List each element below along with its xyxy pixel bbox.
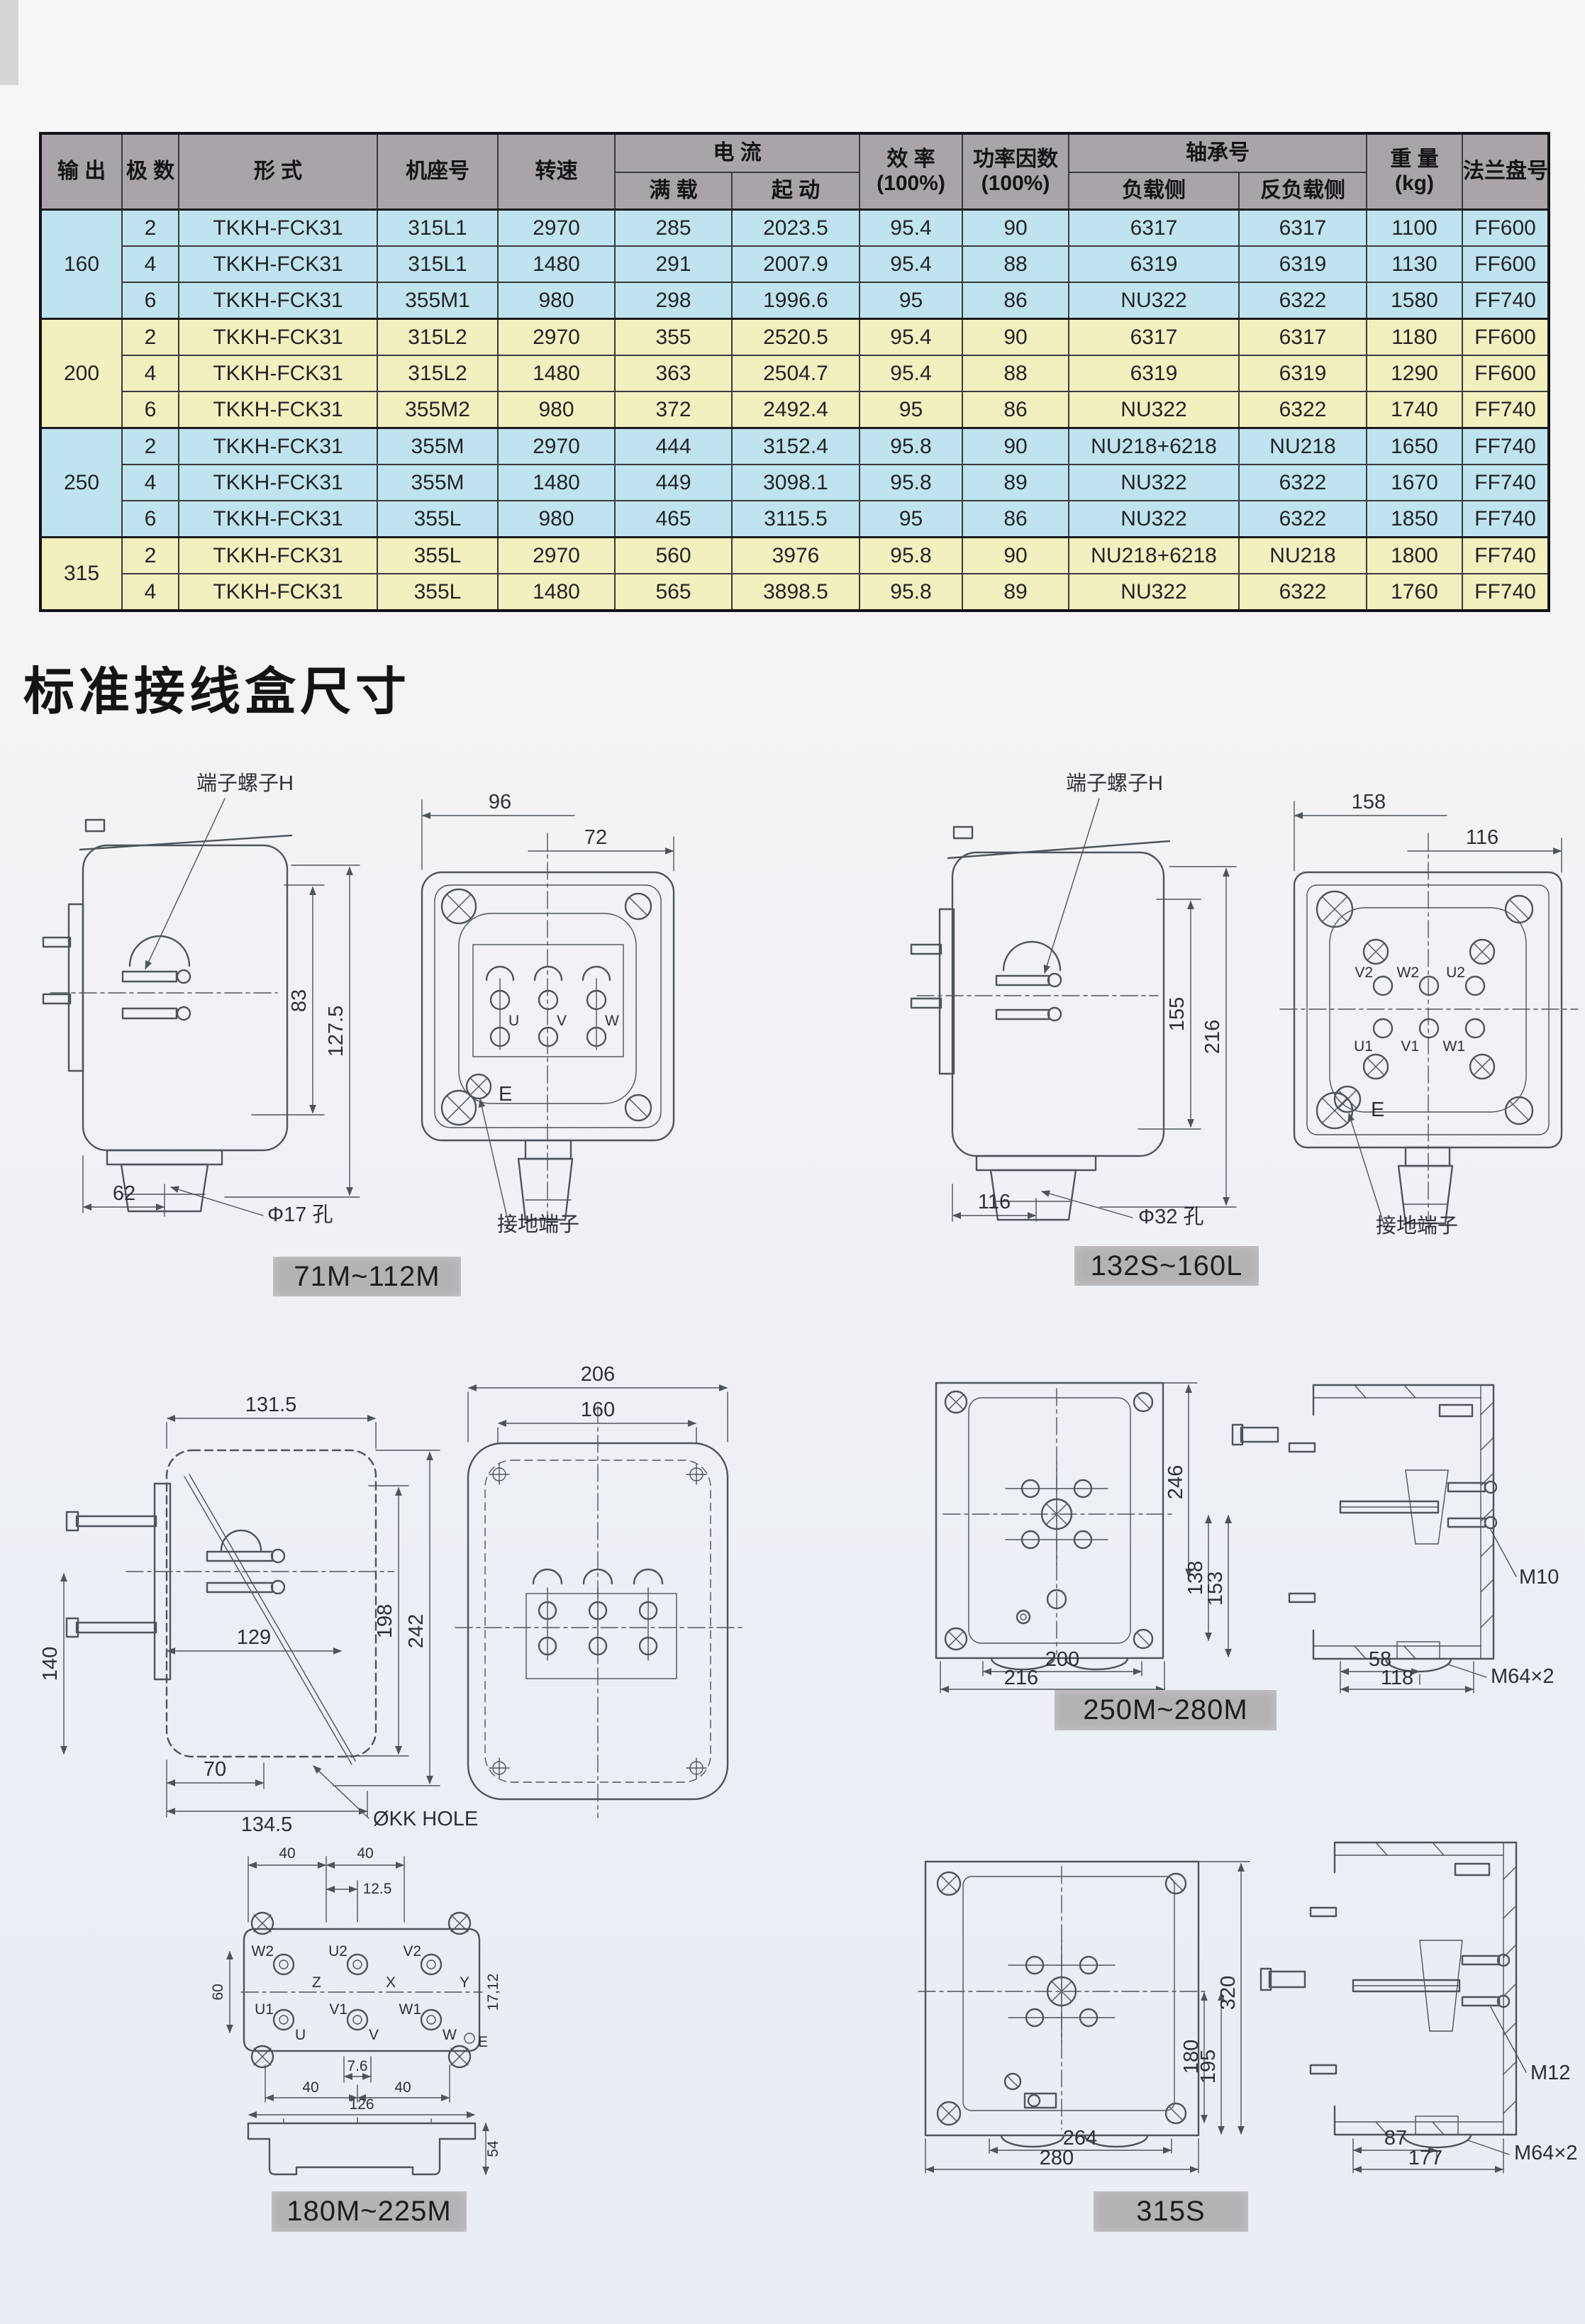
dim-118: 118 xyxy=(1381,1667,1413,1689)
spec-cell: 1580 xyxy=(1367,282,1462,319)
hole-dim-label: Φ17 孔 xyxy=(267,1203,333,1226)
spec-cell: 6 xyxy=(122,391,179,428)
spec-table-body: 1602TKKH-FCK31315L129702852023.595.49063… xyxy=(40,210,1549,611)
spec-cell: 2970 xyxy=(498,210,615,247)
col-header-type: 形 式 xyxy=(179,133,377,210)
table-row: 6TKKH-FCK31355M19802981996.69586NU322632… xyxy=(40,282,1549,319)
spec-cell: 95.8 xyxy=(860,538,962,574)
dim-40-bot-left: 40 xyxy=(302,2079,318,2096)
dimension-annotations: 端子螺子H 155 216 116 Φ32 孔 xyxy=(952,772,1236,1228)
dim-40-bot-right: 40 xyxy=(394,2079,411,2096)
dimension-annotations: 158 116 xyxy=(1294,791,1562,872)
diagram-132s-front-view: 158 116 V2 W2 U2 U1 V1 W1 E xyxy=(1269,766,1585,1234)
table-row: 4TKKH-FCK31355L14805653898.595.889NU3226… xyxy=(40,574,1549,611)
spec-cell: 315L1 xyxy=(377,210,498,247)
spec-cell: NU218+6218 xyxy=(1069,428,1239,465)
spec-cell: 6322 xyxy=(1239,501,1367,538)
earth-terminal-label: E xyxy=(478,2034,488,2050)
phase-v-label: V xyxy=(369,2027,379,2043)
thread-m12-label: M12 xyxy=(1530,2062,1570,2084)
table-row: 2002TKKH-FCK31315L229703552520.595.49063… xyxy=(40,319,1549,356)
spec-cell: 95.4 xyxy=(860,246,962,282)
dim-155: 155 xyxy=(1166,997,1189,1031)
spec-cell: 355M1 xyxy=(377,282,498,319)
spec-cell: 1290 xyxy=(1367,355,1462,391)
spec-cell: 6319 xyxy=(1069,246,1239,282)
col-header-load-side: 负载侧 xyxy=(1069,172,1239,210)
spec-cell: 315L1 xyxy=(377,246,498,282)
terminal-u-label: U xyxy=(508,1013,519,1029)
junction-box-body xyxy=(43,820,291,1211)
spec-cell: 298 xyxy=(615,282,732,319)
col-header-current: 电 流 xyxy=(615,133,860,172)
spec-cell: 355L xyxy=(377,574,498,611)
front-view xyxy=(936,1383,1172,1669)
dim-195: 195 xyxy=(1197,2050,1220,2084)
dim-280: 280 xyxy=(1040,2147,1074,2169)
dim-40-top-left: 40 xyxy=(279,1845,295,1862)
link-x-label: X xyxy=(386,1974,396,1991)
spec-cell: 6319 xyxy=(1069,355,1239,391)
spec-cell: 88 xyxy=(962,355,1069,391)
dimension-annotations-bottom: 7.6 40 40 xyxy=(265,2057,450,2102)
frame-range-label-250m-280m: 250M~280M xyxy=(1055,1690,1277,1730)
dim-131-5: 131.5 xyxy=(245,1394,297,1416)
spec-cell: 1800 xyxy=(1367,538,1462,574)
terminal-block-side-view: 126 54 xyxy=(248,2096,501,2174)
spec-cell: FF740 xyxy=(1462,391,1549,428)
spec-cell: NU322 xyxy=(1069,391,1239,428)
diagram-midframe-front-view: 206 160 xyxy=(447,1344,752,1855)
spec-cell: 95 xyxy=(860,282,962,319)
junction-box-cover xyxy=(422,833,674,1225)
spec-cell: 90 xyxy=(962,428,1069,465)
spec-cell: 2 xyxy=(122,538,179,574)
spec-cell: 355 xyxy=(615,319,732,356)
spec-cell: 1480 xyxy=(498,465,615,501)
spec-cell: 1650 xyxy=(1367,428,1462,465)
phase-w-label: W xyxy=(443,2027,457,2043)
spec-cell: 980 xyxy=(498,282,615,319)
header-line: (kg) xyxy=(1367,172,1462,196)
spec-cell: 6317 xyxy=(1239,210,1367,247)
spec-cell: 2023.5 xyxy=(732,210,860,247)
spec-cell: 355M2 xyxy=(377,391,498,428)
corner-screw-icon xyxy=(945,1391,1152,1650)
spec-cell: 6322 xyxy=(1239,465,1367,501)
spec-cell: 88 xyxy=(962,246,1069,282)
cable-gland xyxy=(1398,1147,1452,1223)
spec-cell: NU322 xyxy=(1069,501,1239,538)
spec-cell: TKKH-FCK31 xyxy=(179,501,377,538)
spec-cell: 6319 xyxy=(1239,355,1367,391)
spec-cell: 2504.7 xyxy=(732,355,860,391)
spec-cell: FF740 xyxy=(1462,501,1549,538)
spec-cell: 980 xyxy=(498,501,615,538)
ground-terminal-label: 接地端子 xyxy=(1376,1214,1458,1238)
dimension-annotations: 200 216 246 138 153 xyxy=(940,1383,1228,1693)
header-line: 功率因数 xyxy=(963,148,1068,172)
header-line: (100%) xyxy=(860,172,962,196)
dimension-annotations-section: M10 58 118 M64×2 xyxy=(1340,1530,1559,1693)
spec-cell: 1480 xyxy=(498,246,615,282)
spec-cell: 90 xyxy=(962,210,1069,247)
cable-gland xyxy=(518,1140,572,1220)
spec-cell: 565 xyxy=(615,574,732,611)
dim-158: 158 xyxy=(1352,791,1386,813)
spec-cell: TKKH-FCK31 xyxy=(179,282,377,319)
dimension-annotations: 131.5 129 198 242 140 70 134.5 ØKK HOLE xyxy=(39,1394,478,1836)
spec-cell: 6322 xyxy=(1239,282,1367,319)
motor-spec-table: 输 出 极 数 形 式 机座号 转速 电 流 效 率 (100%) 功率因数 (… xyxy=(39,132,1550,612)
dim-153: 153 xyxy=(1204,1572,1227,1606)
spec-cell: 2 xyxy=(122,210,179,247)
col-header-bearing: 轴承号 xyxy=(1069,133,1367,172)
spec-cell: TKKH-FCK31 xyxy=(179,355,377,391)
col-header-weight: 重 量 (kg) xyxy=(1367,133,1462,210)
spec-cell: 1480 xyxy=(498,355,615,391)
col-header-anti-load-side: 反负载侧 xyxy=(1239,172,1367,210)
spec-cell: 2492.4 xyxy=(732,391,860,428)
spec-cell: FF740 xyxy=(1462,428,1549,465)
table-row: 2502TKKH-FCK31355M29704443152.495.890NU2… xyxy=(40,428,1549,465)
header-line: 效 率 xyxy=(860,148,962,172)
terminal-w2-label: W2 xyxy=(1397,964,1420,981)
spec-cell: NU218 xyxy=(1239,538,1367,574)
section-title: 标准接线盒尺寸 xyxy=(23,650,411,724)
spec-cell: 2970 xyxy=(498,428,615,465)
spec-cell: 4 xyxy=(122,355,179,391)
col-header-flange: 法兰盘号 xyxy=(1462,133,1549,210)
spec-cell: 6 xyxy=(122,282,179,319)
earth-terminal-label: E xyxy=(499,1083,512,1106)
dim-96: 96 xyxy=(489,791,511,813)
col-header-efficiency: 效 率 (100%) xyxy=(860,133,962,210)
spec-cell: 6317 xyxy=(1239,319,1367,356)
dim-140: 140 xyxy=(39,1647,62,1681)
dim-60: 60 xyxy=(210,1984,226,2000)
spec-cell: TKKH-FCK31 xyxy=(179,574,377,611)
table-row: 1602TKKH-FCK31315L129702852023.595.49063… xyxy=(40,210,1549,247)
dim-7-6: 7.6 xyxy=(347,2058,367,2074)
spec-cell: FF740 xyxy=(1462,574,1549,611)
frame-range-label-315s: 315S xyxy=(1094,2191,1248,2232)
terminal-block-top-view: W2 U2 V2 Z X Y U1 V1 W1 U V W E xyxy=(241,1913,488,2067)
spec-cell: 2 xyxy=(122,319,179,356)
dim-116: 116 xyxy=(1466,826,1498,849)
dim-54: 54 xyxy=(485,2140,501,2157)
dim-40-top-right: 40 xyxy=(357,1845,373,1862)
spec-cell: FF740 xyxy=(1462,465,1549,501)
dim-134-5: 134.5 xyxy=(241,1813,293,1836)
terminal-block: V2 W2 U2 U1 V1 W1 E xyxy=(1335,940,1494,1121)
dim-70: 70 xyxy=(204,1758,226,1781)
table-row: 6TKKH-FCK31355M29803722492.49586NU322632… xyxy=(40,391,1549,428)
terminal-u2-label: U2 xyxy=(1446,964,1465,981)
spec-cell: 2007.9 xyxy=(732,246,860,282)
spec-cell: 95.8 xyxy=(860,574,962,611)
spec-cell: 86 xyxy=(962,501,1069,538)
spec-cell: 6322 xyxy=(1239,391,1367,428)
spec-cell: 4 xyxy=(122,574,179,611)
spec-cell: 4 xyxy=(122,465,179,501)
table-row: 4TKKH-FCK31315L114802912007.995.48863196… xyxy=(40,246,1549,282)
spec-cell: 95 xyxy=(860,391,962,428)
thread-m64-label: M64×2 xyxy=(1514,2142,1577,2164)
output-group-cell: 250 xyxy=(40,428,122,538)
spec-cell: 2 xyxy=(122,428,179,465)
spec-cell: 1760 xyxy=(1367,574,1462,611)
dim-198: 198 xyxy=(374,1604,396,1638)
spec-cell: 291 xyxy=(615,246,732,282)
spec-cell: 6322 xyxy=(1239,574,1367,611)
spec-cell: 560 xyxy=(615,538,732,574)
front-view xyxy=(918,1862,1207,2147)
spec-cell: 465 xyxy=(615,501,732,538)
terminal-v1-label: V1 xyxy=(329,2001,347,2018)
spec-cell: 3115.5 xyxy=(732,501,860,538)
spec-cell: TKKH-FCK31 xyxy=(179,246,377,282)
terminal-screw-label: 端子螺子H xyxy=(1066,772,1163,795)
thread-m10-label: M10 xyxy=(1519,1566,1559,1589)
spec-cell: 95.8 xyxy=(860,428,962,465)
spec-cell: NU322 xyxy=(1069,282,1239,319)
catalog-page: { "title": { "section": "标准接线盒尺寸" }, "ta… xyxy=(0,0,1585,2324)
dim-12-5: 12.5 xyxy=(363,1881,392,1897)
dim-17-12: 17,12 xyxy=(485,1974,501,2011)
spec-cell: 449 xyxy=(615,465,732,501)
output-group-cell: 160 xyxy=(40,210,122,319)
dimension-annotations-top: 40 40 12.5 xyxy=(248,1845,404,1922)
spec-cell: 6 xyxy=(122,501,179,538)
terminal-u1-label: U1 xyxy=(1354,1038,1373,1055)
terminal-w2-label: W2 xyxy=(252,1943,274,1959)
junction-box-cover xyxy=(1280,833,1578,1230)
dim-127-5: 127.5 xyxy=(325,1006,347,1057)
terminal-block: U V W E xyxy=(467,967,619,1106)
spec-cell: 1670 xyxy=(1367,465,1462,501)
dimension-annotations: 96 72 xyxy=(422,791,674,871)
spec-cell: TKKH-FCK31 xyxy=(179,538,377,574)
dim-206: 206 xyxy=(581,1363,615,1386)
diagram-180m-225m: 40 40 12.5 W2 U2 V2 Z X Y U1 V1 W1 U V W xyxy=(206,1837,511,2177)
thread-m64-label: M64×2 xyxy=(1491,1665,1554,1688)
spec-cell: 285 xyxy=(615,210,732,247)
terminal-v2-label: V2 xyxy=(403,1943,421,1959)
ground-terminal-label: 接地端子 xyxy=(497,1213,579,1236)
hole-dim-label: Φ32 孔 xyxy=(1138,1206,1203,1228)
col-header-power-factor: 功率因数 (100%) xyxy=(962,133,1069,210)
col-header-poles: 极 数 xyxy=(122,133,179,210)
spec-cell: 980 xyxy=(498,391,615,428)
dim-246: 246 xyxy=(1164,1465,1187,1499)
link-z-label: Z xyxy=(312,1974,321,1991)
section-view xyxy=(1289,1385,1496,1672)
dim-87: 87 xyxy=(1384,2127,1407,2150)
junction-box-body xyxy=(67,1450,394,1764)
spec-cell: 95.4 xyxy=(860,319,962,356)
dim-242: 242 xyxy=(405,1614,428,1648)
spec-cell: FF600 xyxy=(1462,355,1549,391)
spec-cell: 1996.6 xyxy=(732,282,860,319)
spec-cell: 355M xyxy=(377,465,498,501)
header-line: 重 量 xyxy=(1367,148,1462,172)
table-row: 4TKKH-FCK31355M14804493098.195.889NU3226… xyxy=(40,465,1549,501)
col-header-frame: 机座号 xyxy=(377,133,498,210)
diagram-71m-side-view: 端子螺子H 83 127.5 62 Φ17 孔 xyxy=(39,759,372,1227)
corner-screw-icon xyxy=(1317,891,1533,1128)
terminal-w1-label: W1 xyxy=(399,2001,422,2018)
dim-83: 83 xyxy=(288,989,311,1012)
section-view xyxy=(1311,1842,1516,2147)
output-group-cell: 200 xyxy=(40,319,122,428)
spec-cell: 6317 xyxy=(1069,319,1239,356)
spec-cell: 95.8 xyxy=(860,465,962,501)
spec-cell: FF740 xyxy=(1462,282,1549,319)
spec-cell: 3898.5 xyxy=(732,574,860,611)
spec-cell: FF600 xyxy=(1462,246,1549,282)
spec-cell: 1130 xyxy=(1367,246,1462,282)
loose-bolt xyxy=(1261,1969,1305,1990)
col-header-full-load: 满 载 xyxy=(615,172,732,210)
diagram-midframe-side-view: 131.5 129 198 242 140 70 134.5 ØKK HOLE xyxy=(35,1369,461,1837)
spec-table-header: 输 出 极 数 形 式 机座号 转速 电 流 效 率 (100%) 功率因数 (… xyxy=(40,133,1549,210)
spec-cell: 86 xyxy=(962,282,1069,319)
spec-cell: 89 xyxy=(962,465,1069,501)
dim-126: 126 xyxy=(349,2096,374,2113)
spec-cell: 95 xyxy=(860,501,962,538)
dim-177: 177 xyxy=(1408,2147,1442,2169)
mount-hole-icon xyxy=(252,1913,470,2067)
terminal-u2-label: U2 xyxy=(328,1943,347,1959)
dimension-annotations-section: M12 87 177 M64×2 xyxy=(1353,2007,1577,2173)
phase-u-label: U xyxy=(295,2027,306,2043)
spec-cell: 1850 xyxy=(1367,501,1462,538)
spec-cell: NU218 xyxy=(1239,428,1367,465)
dim-320: 320 xyxy=(1217,1976,1240,2010)
spec-cell: 90 xyxy=(962,538,1069,574)
spec-cell: 3098.1 xyxy=(732,465,860,501)
terminal-u1-label: U1 xyxy=(255,2001,274,2018)
spec-cell: TKKH-FCK31 xyxy=(179,319,377,356)
dim-116: 116 xyxy=(978,1191,1011,1213)
diagram-71m-front-view: 96 72 U V W E 接地端子 xyxy=(394,766,699,1234)
dim-216: 216 xyxy=(1201,1020,1224,1054)
spec-cell: 1740 xyxy=(1367,391,1462,428)
spec-cell: 2970 xyxy=(498,319,615,356)
terminal-w1-label: W1 xyxy=(1443,1038,1466,1055)
terminal-v2-label: V2 xyxy=(1355,964,1373,981)
spec-cell: TKKH-FCK31 xyxy=(179,428,377,465)
spec-cell: 355L xyxy=(377,538,498,574)
spec-cell: 86 xyxy=(962,391,1069,428)
diagram-315s: 180 195 320 264 280 M12 xyxy=(844,1801,1585,2177)
spec-cell: TKKH-FCK31 xyxy=(179,210,377,247)
col-header-output: 输 出 xyxy=(40,133,122,210)
spec-cell: FF600 xyxy=(1462,319,1549,356)
link-y-label: Y xyxy=(460,1974,469,1991)
spec-cell: 90 xyxy=(962,319,1069,356)
spec-cell: 6317 xyxy=(1069,210,1239,247)
terminal-v-label: V xyxy=(557,1013,567,1029)
scan-artifact xyxy=(0,0,18,85)
spec-cell: NU322 xyxy=(1069,574,1239,611)
table-row: 4TKKH-FCK31315L214803632504.795.48863196… xyxy=(40,355,1549,391)
spec-cell: 315L2 xyxy=(377,319,498,356)
diagram-250m-280m: 200 216 246 138 153 M10 58 xyxy=(844,1344,1585,1691)
spec-cell: 95.4 xyxy=(860,210,962,247)
junction-box-body xyxy=(911,827,1169,1220)
spec-cell: 6319 xyxy=(1239,246,1367,282)
spec-cell: 363 xyxy=(615,355,732,391)
spec-cell: 89 xyxy=(962,574,1069,611)
spec-cell: 444 xyxy=(615,428,732,465)
terminal-screw-label: 端子螺子H xyxy=(196,772,294,795)
spec-cell: 3152.4 xyxy=(732,428,860,465)
frame-range-label-71m-112m: 71M~112M xyxy=(273,1257,461,1296)
spec-cell: NU322 xyxy=(1069,465,1239,501)
spec-cell: 1180 xyxy=(1367,319,1462,356)
spec-cell: NU218+6218 xyxy=(1069,538,1239,574)
spec-cell: 355L xyxy=(377,501,498,538)
spec-cell: TKKH-FCK31 xyxy=(179,391,377,428)
spec-cell: 1100 xyxy=(1367,210,1462,247)
dim-200: 200 xyxy=(1045,1648,1079,1671)
junction-box-cover xyxy=(455,1406,743,1818)
frame-range-label-180m-225m: 180M~225M xyxy=(272,2191,467,2232)
spec-cell: FF600 xyxy=(1462,210,1549,247)
table-row: 6TKKH-FCK31355L9804653115.59586NU3226322… xyxy=(40,501,1549,538)
spec-cell: 3976 xyxy=(732,538,860,574)
loose-bolt xyxy=(1233,1425,1278,1445)
spec-cell: TKKH-FCK31 xyxy=(179,465,377,501)
spec-cell: FF740 xyxy=(1462,538,1549,574)
output-group-cell: 315 xyxy=(40,538,122,611)
dim-129: 129 xyxy=(237,1626,271,1649)
col-header-speed: 转速 xyxy=(498,133,615,210)
dim-216: 216 xyxy=(1004,1667,1038,1689)
header-line: (100%) xyxy=(963,172,1068,196)
frame-range-label-132s-160l: 132S~160L xyxy=(1074,1246,1259,1286)
spec-cell: 2970 xyxy=(498,538,615,574)
spec-cell: 315L2 xyxy=(377,355,498,391)
dim-72: 72 xyxy=(584,826,607,849)
col-header-starting: 起 动 xyxy=(732,172,860,210)
table-row: 3152TKKH-FCK31355L2970560397695.890NU218… xyxy=(40,538,1549,574)
spec-cell: 95.4 xyxy=(860,355,962,391)
diagram-132s-side-view: 端子螺子H 155 216 116 Φ32 孔 xyxy=(897,759,1252,1227)
spec-cell: 1480 xyxy=(498,574,615,611)
spec-cell: 372 xyxy=(615,391,732,428)
dim-62: 62 xyxy=(113,1182,135,1205)
spec-cell: 4 xyxy=(122,246,179,282)
spec-cell: 2520.5 xyxy=(732,319,860,356)
earth-terminal-label: E xyxy=(1371,1099,1384,1121)
terminal-v1-label: V1 xyxy=(1401,1038,1419,1055)
spec-cell: 355M xyxy=(377,428,498,465)
terminal-w-label: W xyxy=(605,1013,619,1029)
